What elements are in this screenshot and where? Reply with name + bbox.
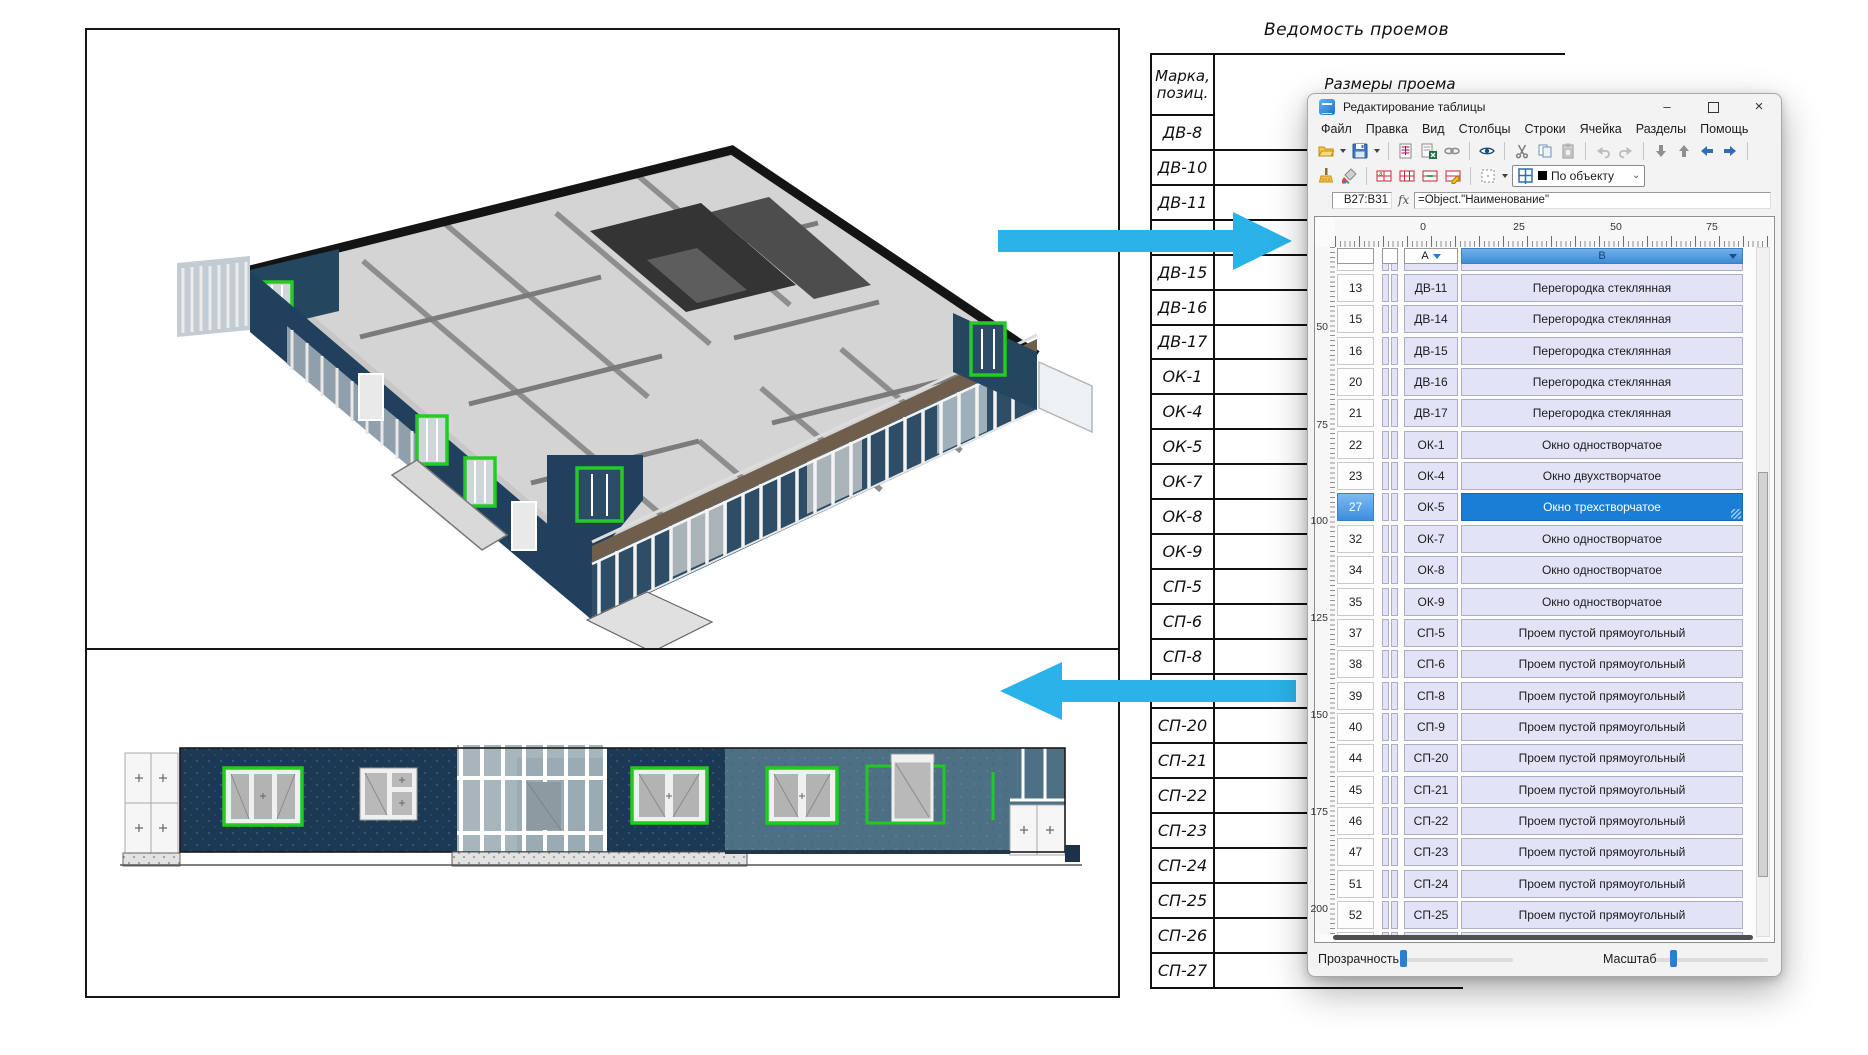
narrow-cell[interactable] <box>1391 650 1398 678</box>
schedule-mark-cell: ОК-4 <box>1150 395 1215 430</box>
narrow-cell[interactable] <box>1391 744 1398 772</box>
cell-column-a[interactable]: СП-5 <box>1404 619 1458 647</box>
menubar: ФайлПравкаВидСтолбцыСтрокиЯчейкаРазделыП… <box>1308 120 1781 139</box>
row-number-cell[interactable] <box>1337 264 1374 271</box>
cell-column-b[interactable]: Окно одностворчатое <box>1461 525 1743 553</box>
transparency-label: Прозрачность <box>1318 952 1399 966</box>
grid-row[interactable]: 13ДВ-11Перегородка стеклянная <box>1335 274 1752 302</box>
schedule-mark-cell: СП-27 <box>1150 954 1215 989</box>
schedule-mark-cell: СП-6 <box>1150 605 1215 640</box>
cell-column-b[interactable]: Окно одностворчатое <box>1461 556 1743 584</box>
cell-column-a[interactable]: СП-9 <box>1404 713 1458 741</box>
narrow-cell[interactable] <box>1391 619 1398 647</box>
cell-column-a[interactable]: СП-21 <box>1404 776 1458 804</box>
cell-column-b[interactable] <box>1461 264 1743 271</box>
arrow-left-icon <box>998 660 1296 722</box>
copy-button[interactable] <box>1535 141 1555 161</box>
move-up-button[interactable] <box>1674 141 1694 161</box>
grid-row[interactable]: 46СП-22Проем пустой прямоугольный <box>1335 807 1752 835</box>
table-style-combo[interactable]: По объекту ⌄ <box>1512 165 1645 187</box>
cell-column-a[interactable]: СП-6 <box>1404 650 1458 678</box>
grid-row[interactable]: 52СП-25Проем пустой прямоугольный <box>1335 901 1752 929</box>
row-number-cell[interactable]: 39 <box>1337 682 1374 710</box>
grid-row[interactable]: 23ОК-4Окно двухстворчатое <box>1335 462 1752 490</box>
edit-cell-button[interactable] <box>1443 166 1463 186</box>
narrow-cell[interactable] <box>1391 713 1398 741</box>
horizontal-scrollbar[interactable] <box>1333 935 1753 940</box>
grid-row[interactable]: 15ДВ-14Перегородка стеклянная <box>1335 305 1752 333</box>
cell-column-b[interactable]: Проем пустой прямоугольный <box>1461 744 1743 772</box>
table-app-icon <box>1319 99 1335 115</box>
vertical-ruler: 5075100125150175200 <box>1315 247 1335 935</box>
cell-column-b[interactable]: Перегородка стеклянная <box>1461 337 1743 365</box>
cell-column-a[interactable]: ОК-9 <box>1404 588 1458 616</box>
narrow-cell[interactable] <box>1391 462 1398 490</box>
row-number-cell[interactable]: 22 <box>1337 431 1374 459</box>
schedule-mark-cell: СП-26 <box>1150 919 1215 954</box>
viewport-3d-model <box>85 28 1120 652</box>
dialog-title: Редактирование таблицы <box>1343 100 1485 114</box>
cell-column-b[interactable]: Перегородка стеклянная <box>1461 305 1743 333</box>
cell-column-b[interactable]: Перегородка стеклянная <box>1461 368 1743 396</box>
cell-column-b[interactable]: Проем пустой прямоугольный <box>1461 619 1743 647</box>
schedule-mark-cell: СП-24 <box>1150 849 1215 884</box>
menu-помощь[interactable]: Помощь <box>1693 120 1755 139</box>
row-number-cell[interactable]: 45 <box>1337 776 1374 804</box>
narrow-cell[interactable] <box>1382 493 1389 521</box>
style-combo-label: По объекту <box>1551 169 1614 183</box>
cell-column-a[interactable]: ДВ-11 <box>1404 274 1458 302</box>
undo-button[interactable] <box>1593 141 1613 161</box>
borders-menu-caret[interactable] <box>1502 174 1508 178</box>
menu-вид[interactable]: Вид <box>1415 120 1452 139</box>
schedule-mark-cell: СП-21 <box>1150 744 1215 779</box>
narrow-cell[interactable] <box>1391 682 1398 710</box>
vruler-label: 125 <box>1310 612 1328 624</box>
clear-format-button[interactable] <box>1316 166 1336 186</box>
row-number-cell[interactable]: 13 <box>1337 274 1374 302</box>
cell-column-b[interactable]: Проем пустой прямоугольный <box>1461 838 1743 866</box>
split-cell-button[interactable] <box>1397 166 1417 186</box>
row-number-cell[interactable]: 51 <box>1337 870 1374 898</box>
cell-column-b[interactable]: Перегородка стеклянная <box>1461 274 1743 302</box>
cell-column-a[interactable]: СП-25 <box>1404 901 1458 929</box>
narrow-cell[interactable] <box>1391 431 1398 459</box>
vruler-label: 100 <box>1310 515 1328 527</box>
cell-reference-box[interactable]: B27:B31 <box>1332 192 1392 209</box>
schedule-mark-cell: ОК-8 <box>1150 500 1215 535</box>
narrow-cell[interactable] <box>1382 264 1389 271</box>
grid-row[interactable]: 16ДВ-15Перегородка стеклянная <box>1335 337 1752 365</box>
schedule-mark-cell: ДВ-16 <box>1150 291 1215 326</box>
export-excel-button[interactable] <box>1419 141 1439 161</box>
row-number-cell[interactable]: 47 <box>1337 838 1374 866</box>
cell-column-a[interactable]: ДВ-17 <box>1404 399 1458 427</box>
narrow-cell[interactable] <box>1382 682 1389 710</box>
row-number-cell[interactable]: 16 <box>1337 337 1374 365</box>
schedule-mark-cell: ОК-9 <box>1150 535 1215 570</box>
elevation-view <box>87 650 1118 996</box>
move-right-button[interactable] <box>1720 141 1740 161</box>
grid-row[interactable]: 37СП-5Проем пустой прямоугольный <box>1335 619 1752 647</box>
vertical-scrollbar-thumb[interactable] <box>1758 472 1768 877</box>
narrow-cell[interactable] <box>1391 337 1398 365</box>
formula-bar: B27:B31 fx =Object."Наименование" <box>1308 190 1781 214</box>
cell-column-a[interactable]: ОК-5 <box>1404 493 1458 521</box>
narrow-cell[interactable] <box>1382 744 1389 772</box>
grid-row[interactable]: 32ОК-7Окно одностворчатое <box>1335 525 1752 553</box>
narrow-cell[interactable] <box>1391 588 1398 616</box>
menu-строки[interactable]: Строки <box>1517 120 1572 139</box>
column-header-b[interactable]: B <box>1461 248 1743 264</box>
cell-column-b[interactable]: Окно двухстворчатое <box>1461 462 1743 490</box>
narrow-cell[interactable] <box>1391 556 1398 584</box>
narrow-cell[interactable] <box>1382 619 1389 647</box>
menu-правка[interactable]: Правка <box>1359 120 1415 139</box>
move-down-button[interactable] <box>1651 141 1671 161</box>
grid-row[interactable]: 51СП-24Проем пустой прямоугольный <box>1335 870 1752 898</box>
cut-button[interactable] <box>1512 141 1532 161</box>
minimize-button[interactable]: – <box>1650 94 1684 120</box>
cell-column-a[interactable]: ОК-7 <box>1404 525 1458 553</box>
open-button[interactable] <box>1316 141 1336 161</box>
row-number-cell[interactable]: 34 <box>1337 556 1374 584</box>
narrow-cell[interactable] <box>1391 368 1398 396</box>
grid-row[interactable]: 40СП-9Проем пустой прямоугольный <box>1335 713 1752 741</box>
narrow-cell[interactable] <box>1382 431 1389 459</box>
grid-row[interactable]: 44СП-20Проем пустой прямоугольный <box>1335 744 1752 772</box>
grid-row[interactable]: 27ОК-5Окно трехстворчатое <box>1335 493 1752 521</box>
schedule-mark-cell: СП-5 <box>1150 570 1215 605</box>
cell-column-b[interactable]: Перегородка стеклянная <box>1461 399 1743 427</box>
cell-column-a[interactable]: СП-24 <box>1404 870 1458 898</box>
grid-row[interactable]: 45СП-21Проем пустой прямоугольный <box>1335 776 1752 804</box>
vruler-label: 175 <box>1310 806 1328 818</box>
schedule-mark-cell: ДВ-10 <box>1150 151 1215 186</box>
fx-icon: fx <box>1398 193 1409 207</box>
cell-column-a[interactable]: ДВ-14 <box>1404 305 1458 333</box>
link-button[interactable] <box>1442 141 1462 161</box>
schedule-title: Ведомость проемов <box>1150 20 1563 40</box>
narrow-cell[interactable] <box>1382 337 1389 365</box>
narrow-cell[interactable] <box>1391 525 1398 553</box>
row-number-cell[interactable]: 35 <box>1337 588 1374 616</box>
format-painter-button[interactable] <box>1339 166 1359 186</box>
narrow-cell[interactable] <box>1391 807 1398 835</box>
row-number-cell[interactable]: 15 <box>1337 305 1374 333</box>
schedule-mark-cell: ОК-7 <box>1150 465 1215 500</box>
vruler-label: 75 <box>1316 419 1328 431</box>
schedule-mark-cell: ДВ-8 <box>1150 116 1215 151</box>
cell-column-a[interactable] <box>1404 264 1458 271</box>
row-number-cell[interactable]: 38 <box>1337 650 1374 678</box>
toolbar-main <box>1308 139 1781 163</box>
grid-rows-area: 13ДВ-11Перегородка стеклянная15ДВ-14Пере… <box>1335 264 1752 938</box>
transparency-slider[interactable] <box>1403 958 1513 962</box>
column-header-a[interactable]: A <box>1404 248 1458 264</box>
column-b-dropdown-icon[interactable] <box>1729 254 1737 259</box>
cell-column-b[interactable]: Окно одностворчатое <box>1461 431 1743 459</box>
narrow-cell[interactable] <box>1382 870 1389 898</box>
narrow-cell[interactable] <box>1391 493 1398 521</box>
insert-row-button[interactable]: a <box>1374 166 1394 186</box>
close-button[interactable]: × <box>1742 94 1776 120</box>
grid-row[interactable] <box>1335 264 1752 271</box>
grid-row[interactable]: 21ДВ-17Перегородка стеклянная <box>1335 399 1752 427</box>
narrow-cell[interactable] <box>1382 901 1389 929</box>
scale-slider-thumb[interactable] <box>1670 950 1677 967</box>
redo-button[interactable] <box>1616 141 1636 161</box>
schedule-mark-cell: СП-23 <box>1150 814 1215 849</box>
3d-model-view <box>87 30 1118 650</box>
narrow-cell[interactable] <box>1382 274 1389 302</box>
toolbar-format: a По объекту ⌄ <box>1308 163 1781 188</box>
row-number-cell[interactable]: 32 <box>1337 525 1374 553</box>
cell-column-b[interactable]: Окно одностворчатое <box>1461 588 1743 616</box>
narrow-cell[interactable] <box>1382 713 1389 741</box>
menu-разделы[interactable]: Разделы <box>1629 120 1693 139</box>
horizontal-ruler: 0255075 <box>1335 219 1772 247</box>
color-swatch <box>1538 171 1547 180</box>
vruler-label: 50 <box>1316 321 1328 333</box>
grid-row[interactable]: 20ДВ-16Перегородка стеклянная <box>1335 368 1752 396</box>
cell-column-a[interactable]: СП-22 <box>1404 807 1458 835</box>
borders-button[interactable] <box>1478 166 1498 186</box>
merge-cell-button[interactable] <box>1420 166 1440 186</box>
formula-input[interactable]: =Object."Наименование" <box>1414 192 1771 209</box>
move-left-button[interactable] <box>1697 141 1717 161</box>
row-number-cell[interactable]: 23 <box>1337 462 1374 490</box>
chevron-down-icon: ⌄ <box>1632 170 1640 181</box>
narrow-cell[interactable] <box>1391 274 1398 302</box>
cell-column-b[interactable]: Проем пустой прямоугольный <box>1461 870 1743 898</box>
menu-файл[interactable]: Файл <box>1314 120 1359 139</box>
dialog-titlebar[interactable]: Редактирование таблицы – × <box>1308 94 1781 120</box>
grid-row[interactable]: 35ОК-9Окно одностворчатое <box>1335 588 1752 616</box>
grid-row[interactable]: 38СП-6Проем пустой прямоугольный <box>1335 650 1752 678</box>
narrow-cell[interactable] <box>1391 776 1398 804</box>
grid-row[interactable]: 47СП-23Проем пустой прямоугольный <box>1335 838 1752 866</box>
row-number-cell[interactable]: 37 <box>1337 619 1374 647</box>
row-number-cell[interactable]: 20 <box>1337 368 1374 396</box>
cell-column-a[interactable]: СП-23 <box>1404 838 1458 866</box>
cell-column-a[interactable]: ДВ-15 <box>1404 337 1458 365</box>
row-number-cell[interactable]: 21 <box>1337 399 1374 427</box>
schedule-mark-cell: ОК-1 <box>1150 360 1215 395</box>
viewport-elevation <box>85 648 1120 998</box>
cell-column-b[interactable]: Окно трехстворчатое <box>1461 493 1743 521</box>
schedule-mark-cell: ДВ-17 <box>1150 325 1215 360</box>
hruler-label: 75 <box>1706 221 1718 233</box>
cell-column-a[interactable]: СП-8 <box>1404 682 1458 710</box>
cell-column-a[interactable]: СП-20 <box>1404 744 1458 772</box>
grid-icon <box>1517 167 1534 184</box>
narrow-cell[interactable] <box>1382 807 1389 835</box>
dialog-bottom-bar: Прозрачность Масштаб <box>1308 946 1781 975</box>
row-number-cell[interactable]: 46 <box>1337 807 1374 835</box>
narrow-cell[interactable] <box>1382 650 1389 678</box>
schedule-col1-header: Марка, позиц. <box>1150 53 1215 116</box>
corner-header-cell <box>1337 248 1374 264</box>
hruler-label: 50 <box>1610 221 1622 233</box>
narrow-cell[interactable] <box>1382 399 1389 427</box>
cell-column-a[interactable]: ОК-8 <box>1404 556 1458 584</box>
row-number-cell[interactable]: 40 <box>1337 713 1374 741</box>
cell-column-a[interactable]: ОК-1 <box>1404 431 1458 459</box>
narrow-cell[interactable] <box>1391 264 1398 271</box>
blank-header-cell <box>1382 248 1398 264</box>
cell-column-a[interactable]: ДВ-16 <box>1404 368 1458 396</box>
grid-row[interactable]: 34ОК-8Окно одностворчатое <box>1335 556 1752 584</box>
narrow-cell[interactable] <box>1391 870 1398 898</box>
grid-row[interactable]: 22ОК-1Окно одностворчатое <box>1335 431 1752 459</box>
schedule-mark-cell: СП-25 <box>1150 884 1215 919</box>
narrow-cell[interactable] <box>1391 305 1398 333</box>
paste-button[interactable] <box>1558 141 1578 161</box>
narrow-cell[interactable] <box>1382 368 1389 396</box>
vertical-scrollbar[interactable] <box>1756 247 1770 937</box>
narrow-cell[interactable] <box>1382 305 1389 333</box>
open-menu-caret[interactable] <box>1340 149 1346 153</box>
cell-column-b[interactable]: Проем пустой прямоугольный <box>1461 682 1743 710</box>
save-button[interactable] <box>1350 141 1370 161</box>
narrow-cell[interactable] <box>1391 901 1398 929</box>
narrow-cell[interactable] <box>1391 838 1398 866</box>
cell-column-b[interactable]: Проем пустой прямоугольный <box>1461 776 1743 804</box>
column-a-dropdown-icon[interactable] <box>1433 254 1441 259</box>
transparency-slider-thumb[interactable] <box>1400 950 1407 967</box>
scale-label: Масштаб <box>1603 952 1656 966</box>
import-table-button[interactable] <box>1396 141 1416 161</box>
save-menu-caret[interactable] <box>1374 149 1380 153</box>
narrow-cell[interactable] <box>1382 556 1389 584</box>
vruler-label: 200 <box>1310 903 1328 915</box>
table-edit-dialog: Редактирование таблицы – × ФайлПравкаВид… <box>1307 93 1782 977</box>
table-grid-panel: 0255075 5075100125150175200 A B 13ДВ-11П… <box>1314 216 1775 943</box>
narrow-cell[interactable] <box>1382 776 1389 804</box>
cell-column-a[interactable]: ОК-4 <box>1404 462 1458 490</box>
narrow-cell[interactable] <box>1382 838 1389 866</box>
row-number-cell[interactable]: 52 <box>1337 901 1374 929</box>
cell-column-b[interactable]: Проем пустой прямоугольный <box>1461 650 1743 678</box>
menu-ячейка[interactable]: Ячейка <box>1573 120 1629 139</box>
maximize-button[interactable] <box>1696 94 1730 120</box>
hruler-label: 0 <box>1420 221 1426 233</box>
grid-row[interactable]: 39СП-8Проем пустой прямоугольный <box>1335 682 1752 710</box>
vruler-label: 150 <box>1310 709 1328 721</box>
narrow-cell[interactable] <box>1382 462 1389 490</box>
schedule-mark-cell: ОК-5 <box>1150 430 1215 465</box>
cell-column-b[interactable]: Проем пустой прямоугольный <box>1461 807 1743 835</box>
cell-column-b[interactable]: Проем пустой прямоугольный <box>1461 901 1743 929</box>
narrow-cell[interactable] <box>1382 525 1389 553</box>
row-number-cell[interactable]: 27 <box>1337 493 1374 521</box>
arrow-right-icon <box>998 210 1294 274</box>
cell-column-b[interactable]: Проем пустой прямоугольный <box>1461 713 1743 741</box>
narrow-cell[interactable] <box>1391 399 1398 427</box>
hruler-label: 25 <box>1513 221 1525 233</box>
row-number-cell[interactable]: 44 <box>1337 744 1374 772</box>
menu-столбцы[interactable]: Столбцы <box>1452 120 1518 139</box>
visibility-button[interactable] <box>1477 141 1497 161</box>
schedule-mark-cell: СП-22 <box>1150 779 1215 814</box>
narrow-cell[interactable] <box>1382 588 1389 616</box>
